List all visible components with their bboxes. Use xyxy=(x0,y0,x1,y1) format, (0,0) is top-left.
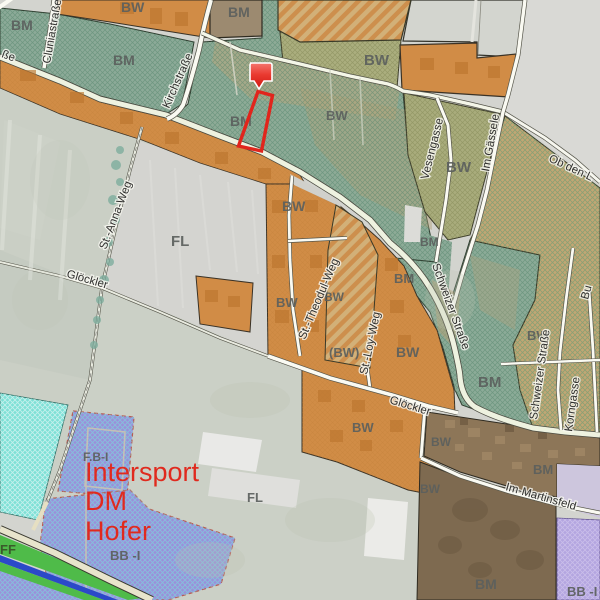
svg-text:BM: BM xyxy=(394,271,414,286)
svg-text:BM: BM xyxy=(228,4,250,20)
svg-text:BB -I: BB -I xyxy=(110,548,140,563)
svg-text:BW: BW xyxy=(352,420,374,435)
svg-text:FF: FF xyxy=(0,542,16,557)
svg-text:BM: BM xyxy=(11,17,33,33)
svg-text:Hofer: Hofer xyxy=(85,516,151,546)
svg-text:BW: BW xyxy=(431,435,452,449)
svg-text:BW: BW xyxy=(364,52,390,69)
svg-text:(BW): (BW) xyxy=(329,345,359,360)
svg-text:BM: BM xyxy=(420,235,439,249)
svg-text:BM: BM xyxy=(533,462,553,477)
svg-text:Intersport: Intersport xyxy=(85,457,200,487)
svg-text:BW: BW xyxy=(326,108,348,123)
svg-text:FL: FL xyxy=(247,490,263,505)
svg-text:BB -I: BB -I xyxy=(567,584,597,599)
svg-text:BM: BM xyxy=(475,576,497,592)
svg-text:DM: DM xyxy=(85,486,127,516)
svg-text:BW: BW xyxy=(121,0,145,15)
svg-text:BW: BW xyxy=(396,344,420,360)
svg-text:BM: BM xyxy=(113,52,135,68)
svg-text:BW: BW xyxy=(282,198,306,214)
svg-text:BW: BW xyxy=(276,295,298,310)
svg-text:FL: FL xyxy=(171,233,189,250)
svg-text:BW: BW xyxy=(420,482,441,496)
svg-text:BW: BW xyxy=(446,159,472,176)
svg-text:BM: BM xyxy=(478,374,501,391)
